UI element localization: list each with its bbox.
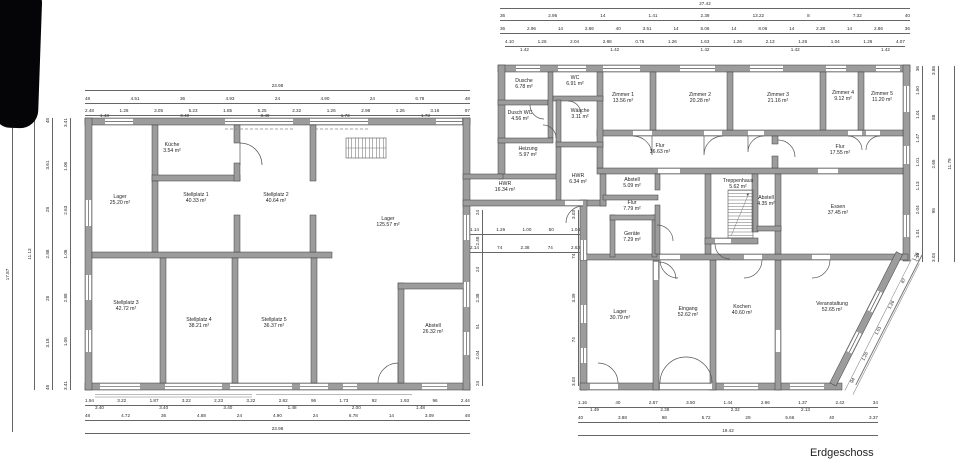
room-label-stellplatz4: Stellplatz 438.21 m² [186, 317, 211, 329]
dim-chain-rb-top-3: 362.96142.86403.51145.06148.06142.28142.… [500, 27, 910, 34]
dim-overall-rb-bottom: 19.42 [578, 429, 878, 436]
room-label-lager1: Lager25.20 m² [110, 194, 130, 206]
dim-chain-left-2: 3.411.062.881.062.631.063.41 [64, 118, 71, 390]
dim-chain-rb-top-2: 362.96141.412.3913.2287.3240 [500, 14, 910, 21]
room-label-hwr16: HWR16.34 m² [495, 181, 515, 193]
room-label-stellplatz3: Stellplatz 342.72 m² [113, 300, 138, 312]
dim-chain-lb-top-2: 484.51364.93244.90246.7848 [85, 97, 470, 104]
dim-chain-right-2: 3.03982.65883.88 [932, 66, 939, 262]
room-label-zimmer2: Zimmer 220.28 m² [689, 92, 711, 104]
dim-chain-lb-bottom-1: 1.943.221.873.222.233.222.82961.73921.93… [85, 399, 470, 406]
room-label-zimmer1: Zimmer 113.56 m² [612, 92, 634, 104]
dim-overall-lb-bottom: 23.98 [85, 427, 470, 434]
room-label-kueche: Küche3.54 m² [163, 142, 181, 154]
dim-chain-lb-top-sub: 1.433.403.401.731.73 [100, 114, 430, 120]
room-label-veranstaltung: Veranstaltung52.65 m² [816, 301, 848, 313]
left-building-walls [85, 118, 470, 390]
dim-chain-rb-bottom-2: 403.88985.72295.66403.37 [578, 416, 878, 423]
dim-chain-mid-2: 2.14742.38742.63 [470, 246, 580, 253]
room-label-zimmer3: Zimmer 321.16 m² [767, 92, 789, 104]
dim-chain-rb-bottom-1: 1.16402.873.501.442.961.372.4234 [578, 401, 878, 408]
room-label-flur-36: Flur36.63 m² [650, 143, 670, 155]
floor-level-title: Erdgeschoss [810, 447, 874, 459]
room-label-essen: Essen37.45 m² [828, 204, 848, 216]
dim-overall-site-left: 17.87 [6, 117, 13, 432]
room-label-zimmer4: Zimmer 49.12 m² [832, 90, 854, 102]
dim-chain-rb-bottom-sub: 1.492.382.322.13 [590, 408, 810, 414]
room-label-wc: WC6.91 m² [566, 75, 584, 87]
room-label-abstell26: Abstell26.32 m² [423, 323, 443, 335]
ladder-hatch [346, 138, 386, 158]
dim-chain-mid-v1: 242.04512.38242.4824 [476, 210, 483, 386]
room-label-abstell5: Abstell5.09 m² [623, 177, 641, 189]
stairs-symbol [728, 190, 753, 238]
room-label-stellplatz1: Stellplatz 140.33 m² [183, 192, 208, 204]
room-label-treppenhaus: Treppenhaus5.62 m² [723, 178, 753, 190]
dim-chain-lb-bottom-2: 484.72364.88244.90246.78143.0948 [85, 414, 470, 421]
room-label-waesche: Wäsche3.11 m² [571, 108, 590, 120]
dim-chain-mid-1: 1.141.261.00501.04 [470, 228, 580, 235]
dim-chain-lb-bottom-sub: 3.403.403.401.482.001.48 [95, 406, 425, 412]
room-label-lager125: Lager125.57 m² [376, 216, 399, 228]
room-label-eingang: Eingang52.62 m² [678, 306, 698, 318]
dim-chain-right-1: 1.161.012.041.131.011.471.011.5036 [916, 66, 923, 262]
room-label-kochen: Kochen40.60 m² [732, 304, 752, 316]
dim-overall-left: 11.13 [28, 118, 35, 390]
room-label-zimmer5: Zimmer 511.20 m² [871, 91, 893, 103]
room-label-stellplatz2: Stellplatz 240.64 m² [263, 192, 288, 204]
room-label-geraete: Geräte7.29 m² [623, 231, 641, 243]
room-label-duschwc: Dusch WC4.56 m² [508, 110, 533, 122]
room-label-heizung: Heizung5.97 m² [518, 146, 537, 158]
room-label-hwr6: HWR6.34 m² [569, 173, 587, 185]
room-label-flur-17: Flur17.55 m² [830, 144, 850, 156]
dim-overall-rb-top: 27.42 [500, 2, 910, 9]
room-label-flur-7: Flur7.79 m² [623, 200, 641, 212]
dim-chain-left-1: 483.18282.88283.6148 [46, 118, 53, 390]
floor-plan: Küche3.54 m² Lager25.20 m² Stellplatz 14… [0, 0, 960, 465]
room-label-lager30: Lager30.79 m² [610, 309, 630, 321]
room-label-abstell4: Abstell4.35 m² [757, 195, 775, 207]
dim-chain-rb-top-4: 4.101.262.042.880.751.261.631.262.131.26… [505, 40, 905, 47]
room-label-stellplatz5: Stellplatz 536.37 m² [261, 317, 286, 329]
dim-overall-lb-top: 23.98 [85, 84, 470, 91]
corner-occlusion [0, 0, 42, 129]
dim-chain-mid-v2: 3.03743.39743.03 [572, 210, 579, 386]
dim-chain-rb-top-sills: 1.421.421.421.421.42 [520, 48, 890, 54]
dim-overall-right: 11.79 [948, 66, 955, 262]
room-label-dusche: Dusche6.78 m² [515, 78, 533, 90]
